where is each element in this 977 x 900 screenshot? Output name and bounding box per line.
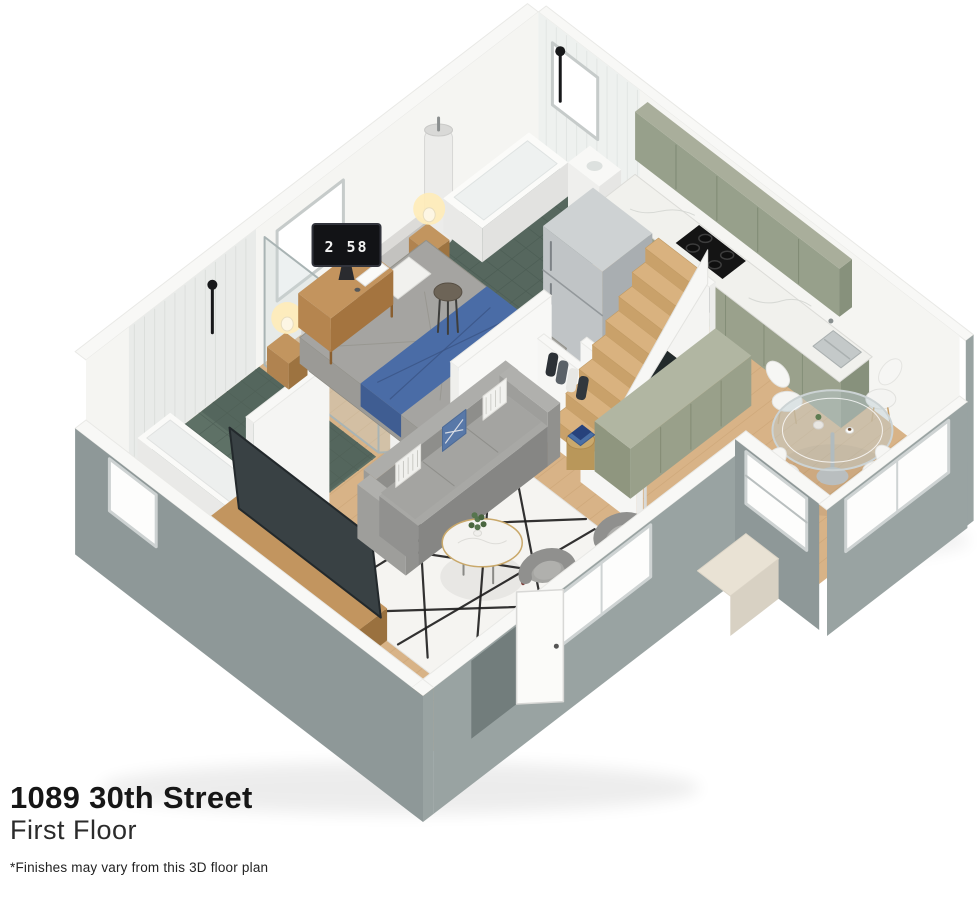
- page: { "annotation": { "address": "1089 30th …: [0, 0, 977, 900]
- address-title: 1089 30th Street: [10, 782, 268, 814]
- floor-plan-stage: 2 58 1089 30th Street First Floor *Finis…: [0, 0, 977, 900]
- flip-clock-display: 2 58: [324, 238, 368, 256]
- caption: 1089 30th Street First Floor *Finishes m…: [10, 782, 268, 875]
- floor-plan-3d: 2 58: [0, 0, 977, 900]
- floor-label: First Floor: [10, 815, 268, 846]
- front-door: [517, 590, 564, 704]
- disclaimer: *Finishes may vary from this 3D floor pl…: [10, 860, 268, 875]
